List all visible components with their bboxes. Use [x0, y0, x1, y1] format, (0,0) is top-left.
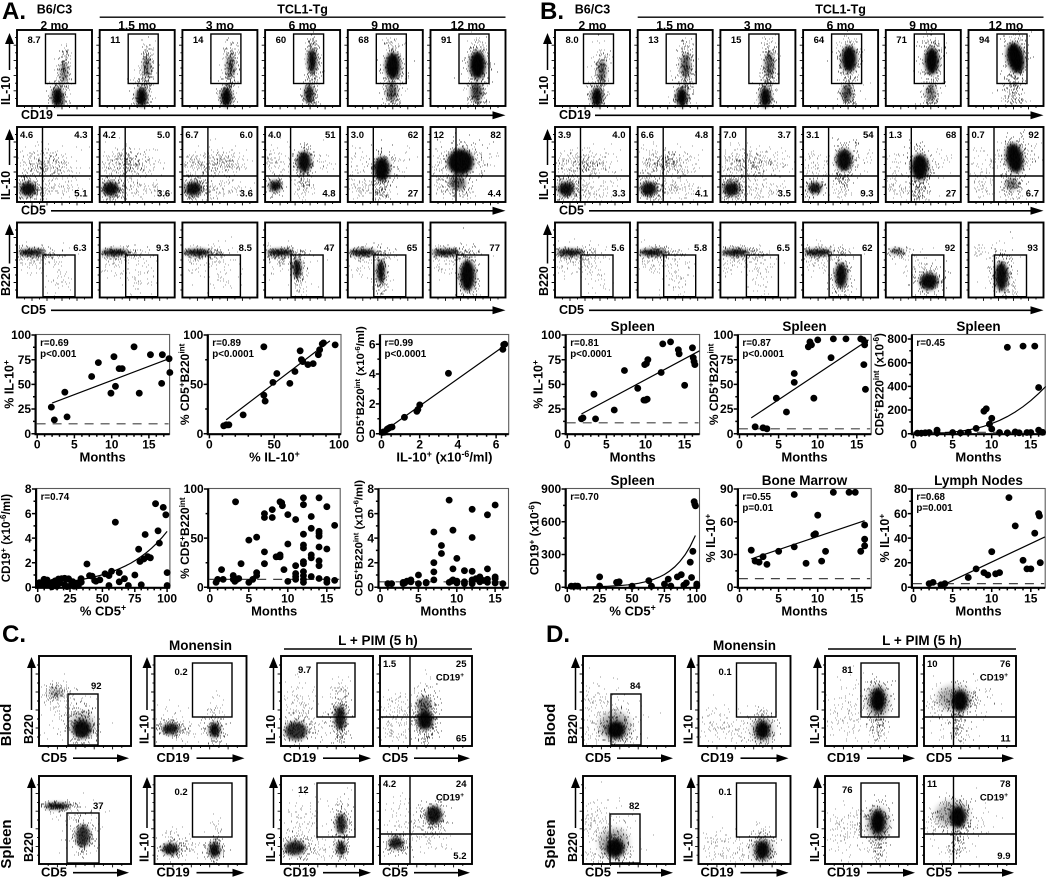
svg-text:CD19+: CD19+ [980, 672, 1008, 683]
svg-text:Months: Months [79, 450, 125, 465]
svg-text:15: 15 [850, 438, 864, 452]
svg-text:50: 50 [548, 378, 562, 392]
svg-text:10: 10 [927, 659, 938, 670]
svg-text:0: 0 [901, 581, 908, 595]
svg-text:100: 100 [687, 591, 707, 605]
svg-text:CD5: CD5 [382, 865, 408, 880]
svg-text:13: 13 [648, 35, 659, 46]
svg-text:IL-10: IL-10 [138, 833, 152, 862]
svg-text:0: 0 [564, 438, 571, 452]
svg-text:% IL-10+: % IL-10+ [876, 514, 892, 563]
svg-text:6.3: 6.3 [73, 243, 86, 254]
svg-text:IL-10: IL-10 [682, 833, 696, 862]
svg-text:600: 600 [541, 515, 561, 529]
svg-text:Months: Months [955, 603, 1001, 618]
svg-text:82: 82 [629, 801, 640, 812]
svg-text:25: 25 [456, 659, 467, 670]
svg-text:62: 62 [408, 130, 419, 141]
svg-text:B220: B220 [22, 714, 36, 744]
svg-text:100: 100 [713, 328, 733, 342]
svg-text:37: 37 [93, 801, 104, 812]
svg-text:8: 8 [25, 482, 32, 496]
svg-text:0.1: 0.1 [719, 787, 733, 798]
svg-text:92: 92 [1028, 130, 1039, 141]
svg-text:0: 0 [206, 591, 213, 605]
svg-text:CD5: CD5 [21, 204, 46, 218]
svg-text:76: 76 [1000, 659, 1011, 670]
svg-text:400: 400 [887, 380, 907, 394]
svg-text:200: 200 [887, 403, 907, 417]
svg-text:CD19: CD19 [827, 750, 860, 765]
svg-text:81: 81 [842, 665, 853, 676]
svg-text:25: 25 [720, 402, 734, 416]
svg-text:11: 11 [1000, 734, 1011, 745]
svg-text:5.0: 5.0 [157, 130, 170, 141]
svg-text:5: 5 [71, 438, 78, 452]
svg-text:Months: Months [781, 603, 827, 618]
svg-text:6: 6 [369, 337, 376, 351]
svg-text:9.3: 9.3 [156, 243, 169, 254]
svg-text:14: 14 [193, 35, 204, 46]
svg-text:4: 4 [25, 531, 32, 545]
svg-text:75: 75 [128, 591, 142, 605]
svg-text:50: 50 [720, 378, 734, 392]
svg-text:CD19: CD19 [283, 865, 316, 880]
svg-text:40: 40 [894, 531, 908, 545]
svg-text:p<0.001: p<0.001 [40, 349, 77, 360]
svg-text:Months: Months [781, 450, 827, 465]
svg-text:0: 0 [727, 427, 734, 441]
svg-text:0: 0 [555, 581, 562, 595]
svg-text:D.: D. [546, 621, 570, 648]
svg-text:IL-10: IL-10 [808, 715, 822, 744]
svg-text:CD5: CD5 [585, 865, 611, 880]
svg-text:4.8: 4.8 [695, 130, 708, 141]
svg-text:0: 0 [736, 591, 743, 605]
svg-text:100: 100 [11, 328, 31, 342]
svg-text:r=0.55: r=0.55 [742, 492, 771, 503]
svg-text:CD5: CD5 [41, 865, 67, 880]
svg-text:Blood: Blood [542, 704, 559, 747]
svg-text:CD19+ (x10-6/ml): CD19+ (x10-6/ml) [0, 494, 13, 582]
svg-text:Bone Marrow: Bone Marrow [762, 473, 848, 488]
svg-text:0: 0 [197, 427, 204, 441]
svg-text:71: 71 [896, 35, 907, 46]
svg-text:8.5: 8.5 [239, 243, 253, 254]
svg-text:25: 25 [593, 591, 607, 605]
svg-text:78: 78 [1000, 779, 1011, 790]
svg-text:CD19: CD19 [701, 750, 734, 765]
svg-text:L + PIM (5 h): L + PIM (5 h) [338, 633, 418, 648]
svg-text:6.7: 6.7 [1026, 189, 1039, 200]
svg-text:CD5: CD5 [559, 204, 584, 218]
svg-text:CD5+B220int (x10-6): CD5+B220int (x10-6) [872, 333, 886, 436]
svg-text:4: 4 [369, 367, 376, 381]
svg-text:p<0.0001: p<0.0001 [742, 349, 784, 360]
svg-text:Spleen: Spleen [956, 319, 1000, 334]
svg-text:CD19: CD19 [157, 865, 190, 880]
svg-text:r=0.45: r=0.45 [916, 338, 945, 349]
svg-text:76: 76 [842, 785, 853, 796]
svg-text:6: 6 [493, 438, 500, 452]
svg-text:15: 15 [142, 438, 156, 452]
svg-text:24: 24 [456, 779, 467, 790]
svg-text:100: 100 [329, 438, 349, 452]
svg-text:0: 0 [901, 427, 908, 441]
svg-text:1.5: 1.5 [383, 659, 397, 670]
svg-text:0: 0 [555, 427, 562, 441]
svg-text:3.7: 3.7 [778, 130, 791, 141]
svg-text:0: 0 [564, 591, 571, 605]
svg-text:50: 50 [18, 378, 32, 392]
svg-text:3.3: 3.3 [612, 189, 625, 200]
svg-text:47: 47 [324, 243, 335, 254]
svg-text:9.3: 9.3 [860, 189, 873, 200]
svg-text:Months: Months [610, 450, 656, 465]
svg-text:r=0.69: r=0.69 [40, 338, 69, 349]
svg-text:92: 92 [91, 681, 102, 692]
svg-text:0: 0 [910, 591, 917, 605]
svg-text:9.9: 9.9 [997, 851, 1010, 862]
svg-text:Months: Months [251, 603, 297, 618]
svg-text:CD19: CD19 [559, 108, 591, 122]
svg-text:3.9: 3.9 [558, 130, 571, 141]
svg-text:64: 64 [814, 35, 825, 46]
svg-text:p<0.0001: p<0.0001 [212, 349, 254, 360]
svg-text:5.8: 5.8 [694, 243, 707, 254]
svg-text:CD19: CD19 [157, 750, 190, 765]
svg-text:0: 0 [25, 581, 32, 595]
svg-text:CD5: CD5 [559, 303, 584, 317]
svg-text:CD5: CD5 [21, 303, 46, 317]
svg-text:0.2: 0.2 [175, 667, 188, 678]
svg-text:15: 15 [678, 438, 692, 452]
svg-text:0: 0 [910, 438, 917, 452]
svg-text:Spleen: Spleen [0, 819, 15, 868]
svg-text:IL-10: IL-10 [264, 833, 278, 862]
svg-text:0.1: 0.1 [719, 667, 733, 678]
svg-text:93: 93 [1027, 243, 1038, 254]
svg-text:25: 25 [548, 402, 562, 416]
svg-text:15: 15 [488, 591, 502, 605]
svg-text:r=0.70: r=0.70 [570, 492, 599, 503]
svg-text:p<0.0001: p<0.0001 [570, 349, 612, 360]
svg-text:r=0.81: r=0.81 [570, 338, 599, 349]
svg-text:8: 8 [367, 482, 374, 496]
svg-text:% IL-10+: % IL-10+ [249, 449, 300, 465]
svg-text:B6/C3: B6/C3 [575, 3, 610, 17]
svg-text:51: 51 [325, 130, 336, 141]
svg-text:Spleen: Spleen [611, 319, 655, 334]
svg-text:3.6: 3.6 [240, 189, 253, 200]
svg-text:5.6: 5.6 [611, 243, 624, 254]
svg-text:B220: B220 [22, 832, 36, 862]
svg-text:3.6: 3.6 [157, 189, 170, 200]
svg-text:CD5: CD5 [926, 750, 952, 765]
svg-text:100: 100 [541, 328, 561, 342]
svg-text:12: 12 [434, 130, 445, 141]
svg-text:11: 11 [110, 35, 121, 46]
svg-text:15: 15 [320, 591, 334, 605]
svg-text:5.2: 5.2 [453, 851, 466, 862]
svg-text:60: 60 [720, 515, 734, 529]
svg-text:B220: B220 [0, 266, 13, 296]
svg-text:8.7: 8.7 [28, 35, 41, 46]
svg-text:11: 11 [927, 779, 938, 790]
svg-text:84: 84 [630, 681, 641, 692]
svg-text:4.4: 4.4 [488, 189, 502, 200]
svg-text:IL-10: IL-10 [0, 76, 13, 105]
svg-text:94: 94 [979, 35, 990, 46]
svg-text:91: 91 [441, 35, 452, 46]
svg-text:27: 27 [946, 189, 957, 200]
svg-text:TCL1-Tg: TCL1-Tg [277, 3, 328, 17]
svg-text:% CD5+: % CD5+ [609, 603, 655, 619]
svg-text:CD19: CD19 [21, 108, 53, 122]
svg-text:12: 12 [298, 785, 309, 796]
svg-text:IL-10: IL-10 [682, 715, 696, 744]
svg-text:8.0: 8.0 [566, 35, 579, 46]
svg-text:CD19: CD19 [283, 750, 316, 765]
svg-text:p<0.0001: p<0.0001 [385, 349, 427, 360]
svg-text:B220: B220 [566, 832, 580, 862]
svg-text:0: 0 [736, 438, 743, 452]
svg-text:600: 600 [887, 356, 907, 370]
svg-text:Spleen: Spleen [542, 819, 559, 868]
svg-text:82: 82 [490, 130, 501, 141]
svg-text:30: 30 [720, 548, 734, 562]
svg-text:6.6: 6.6 [641, 130, 654, 141]
svg-text:3.0: 3.0 [351, 130, 364, 141]
svg-text:0: 0 [378, 438, 385, 452]
svg-text:Monensin: Monensin [713, 638, 776, 653]
svg-text:65: 65 [407, 243, 418, 254]
svg-text:IL-10: IL-10 [808, 833, 822, 862]
svg-text:65: 65 [456, 734, 467, 745]
svg-text:B.: B. [540, 0, 564, 25]
svg-text:90: 90 [720, 482, 734, 496]
svg-text:25: 25 [18, 402, 32, 416]
svg-text:900: 900 [541, 482, 561, 496]
svg-text:CD5: CD5 [926, 865, 952, 880]
svg-text:0.7: 0.7 [972, 130, 985, 141]
svg-text:r=0.87: r=0.87 [742, 338, 771, 349]
svg-text:CD5: CD5 [382, 750, 408, 765]
svg-text:15: 15 [850, 591, 864, 605]
svg-text:4.0: 4.0 [612, 130, 625, 141]
svg-text:50: 50 [190, 378, 204, 392]
svg-text:6.5: 6.5 [777, 243, 791, 254]
svg-text:C.: C. [2, 621, 26, 648]
svg-text:CD5: CD5 [41, 750, 67, 765]
svg-text:CD5: CD5 [585, 750, 611, 765]
svg-text:27: 27 [408, 189, 419, 200]
svg-text:IL-10+ (x10-6/ml): IL-10+ (x10-6/ml) [396, 449, 492, 465]
svg-text:92: 92 [945, 243, 956, 254]
svg-text:3.1: 3.1 [806, 130, 820, 141]
svg-text:r=0.99: r=0.99 [385, 338, 414, 349]
svg-text:80: 80 [894, 482, 908, 496]
svg-text:4: 4 [367, 531, 374, 545]
svg-text:IL-10: IL-10 [537, 76, 551, 105]
svg-text:4.2: 4.2 [103, 130, 116, 141]
svg-text:0: 0 [34, 591, 41, 605]
svg-text:r=0.89: r=0.89 [212, 338, 241, 349]
svg-text:300: 300 [541, 548, 561, 562]
svg-text:6.7: 6.7 [185, 130, 198, 141]
svg-text:0: 0 [197, 581, 204, 595]
svg-text:Monensin: Monensin [169, 638, 232, 653]
svg-text:800: 800 [887, 332, 907, 346]
svg-text:TCL1-Tg: TCL1-Tg [815, 3, 866, 17]
svg-text:75: 75 [548, 353, 562, 367]
svg-text:2: 2 [25, 556, 32, 570]
svg-text:Spleen: Spleen [782, 319, 826, 334]
svg-text:0: 0 [727, 581, 734, 595]
svg-text:CD19: CD19 [701, 865, 734, 880]
svg-text:5.1: 5.1 [74, 189, 88, 200]
svg-text:p=0.01: p=0.01 [742, 503, 773, 514]
svg-text:15: 15 [1024, 438, 1038, 452]
svg-text:54: 54 [863, 130, 874, 141]
svg-text:CD19+: CD19+ [980, 792, 1008, 803]
svg-text:r=0.68: r=0.68 [916, 492, 945, 503]
svg-text:100: 100 [157, 591, 177, 605]
svg-text:2: 2 [369, 397, 376, 411]
svg-text:r=0.74: r=0.74 [41, 492, 70, 503]
svg-text:25: 25 [63, 591, 77, 605]
svg-text:4.6: 4.6 [20, 130, 33, 141]
svg-text:100: 100 [183, 328, 203, 342]
svg-text:CD19+: CD19+ [436, 792, 464, 803]
svg-text:% IL-10+: % IL-10+ [702, 514, 718, 563]
svg-text:75: 75 [720, 353, 734, 367]
svg-text:Blood: Blood [0, 704, 15, 747]
svg-text:B220: B220 [537, 266, 551, 296]
svg-text:L + PIM (5 h): L + PIM (5 h) [882, 633, 962, 648]
svg-text:20: 20 [894, 556, 908, 570]
svg-text:0: 0 [377, 591, 384, 605]
svg-text:15: 15 [1024, 591, 1038, 605]
svg-text:4.2: 4.2 [383, 779, 396, 790]
svg-text:2: 2 [367, 556, 374, 570]
svg-text:68: 68 [358, 35, 369, 46]
svg-text:50: 50 [190, 531, 204, 545]
svg-text:15: 15 [731, 35, 742, 46]
svg-text:6: 6 [367, 507, 374, 521]
svg-text:60: 60 [894, 507, 908, 521]
svg-text:0: 0 [369, 427, 376, 441]
svg-text:77: 77 [489, 243, 500, 254]
svg-text:62: 62 [862, 243, 873, 254]
svg-text:75: 75 [18, 353, 32, 367]
svg-text:0: 0 [34, 438, 41, 452]
svg-text:% IL-10+: % IL-10+ [530, 360, 546, 409]
svg-text:p=0.001: p=0.001 [916, 503, 953, 514]
svg-text:6.0: 6.0 [240, 130, 253, 141]
svg-text:IL-10: IL-10 [537, 171, 551, 200]
svg-text:IL-10: IL-10 [0, 171, 13, 200]
svg-text:60: 60 [276, 35, 287, 46]
svg-text:4.1: 4.1 [695, 189, 709, 200]
svg-text:0: 0 [24, 427, 31, 441]
svg-text:A.: A. [2, 0, 26, 25]
svg-text:CD19: CD19 [827, 865, 860, 880]
svg-text:% CD5+: % CD5+ [80, 603, 126, 619]
svg-text:7.0: 7.0 [723, 130, 736, 141]
svg-text:75: 75 [658, 591, 672, 605]
svg-text:B220: B220 [566, 714, 580, 744]
svg-text:% IL-10+: % IL-10+ [1, 360, 17, 409]
svg-text:0: 0 [367, 581, 374, 595]
svg-text:Months: Months [955, 450, 1001, 465]
svg-text:4.3: 4.3 [74, 130, 87, 141]
svg-text:0.2: 0.2 [175, 787, 188, 798]
svg-text:B6/C3: B6/C3 [37, 3, 72, 17]
svg-text:CD19+: CD19+ [436, 672, 464, 683]
svg-text:Months: Months [420, 603, 466, 618]
svg-text:IL-10: IL-10 [264, 715, 278, 744]
svg-text:9.7: 9.7 [298, 665, 311, 676]
svg-text:Lymph Nodes: Lymph Nodes [934, 473, 1023, 488]
svg-text:Spleen: Spleen [610, 473, 654, 488]
svg-text:100: 100 [184, 482, 204, 496]
svg-text:3.5: 3.5 [778, 189, 792, 200]
svg-text:68: 68 [946, 130, 957, 141]
svg-text:4.8: 4.8 [322, 189, 335, 200]
svg-text:6: 6 [25, 507, 32, 521]
svg-text:4.0: 4.0 [268, 130, 281, 141]
svg-text:0: 0 [206, 438, 213, 452]
svg-text:1.3: 1.3 [889, 130, 902, 141]
svg-text:IL-10: IL-10 [138, 715, 152, 744]
